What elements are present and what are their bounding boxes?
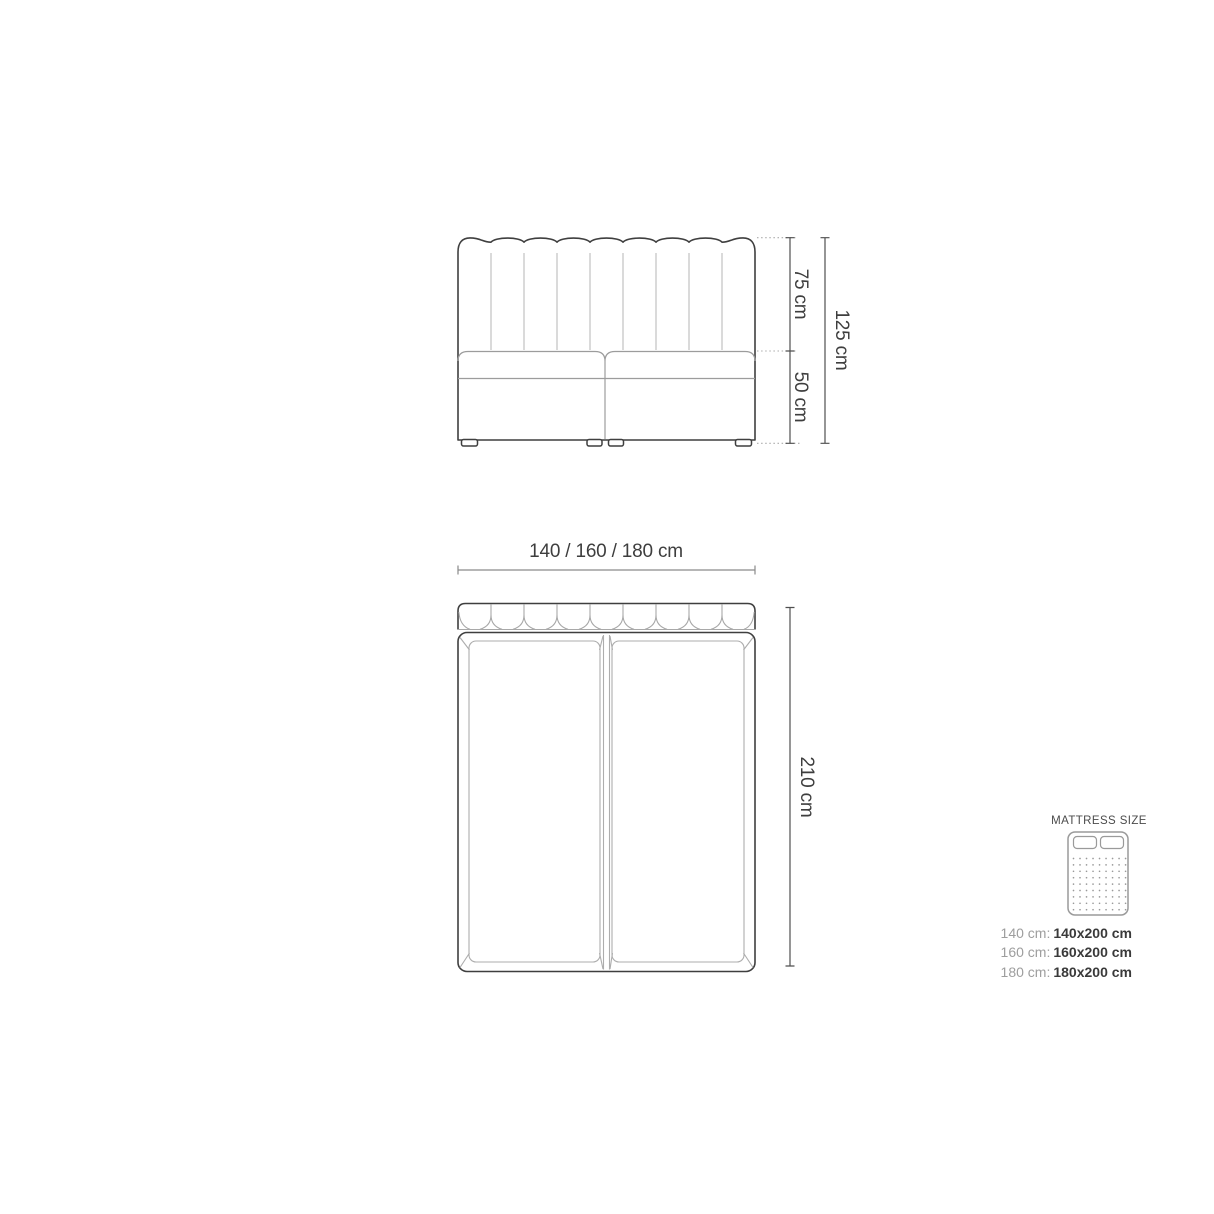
mattress-size-row-label: 140 cm: [1001, 925, 1051, 941]
mattress-size-row-180: 180 cm:180x200 cm [1001, 963, 1132, 982]
mattress-size-row-value: 160x200 cm [1053, 944, 1132, 960]
base-height-label: 50 cm [789, 372, 811, 423]
front-view-drawing [458, 238, 830, 446]
width-label: 140 / 160 / 180 cm [529, 541, 683, 563]
mattress-size-list: 140 cm:140x200 cm 160 cm:160x200 cm 180 … [1001, 924, 1132, 982]
top-frame-outline [458, 633, 755, 972]
mattress-size-title: MATTRESS SIZE [1051, 815, 1147, 827]
width-dimension-line [458, 566, 755, 575]
top-headboard-outline [458, 604, 755, 630]
total-height-label: 125 cm [830, 309, 852, 370]
mattress-size-row-140: 140 cm:140x200 cm [1001, 924, 1132, 943]
diagram-line-art [0, 0, 1214, 1214]
bed-dimension-diagram: 75 cm 50 cm 125 cm 140 / 160 / 180 cm 21… [0, 0, 1214, 1214]
mattress-size-row-value: 180x200 cm [1053, 964, 1132, 980]
length-label: 210 cm [795, 756, 817, 817]
headboard-height-label: 75 cm [789, 269, 811, 320]
mattress-size-row-160: 160 cm:160x200 cm [1001, 943, 1132, 962]
top-view-drawing [458, 566, 795, 972]
mattress-size-icon [1068, 832, 1128, 915]
dimension-line-125 [821, 238, 830, 444]
headboard-outline [458, 238, 755, 440]
mattress-size-row-value: 140x200 cm [1053, 925, 1132, 941]
mattress-size-row-label: 180 cm: [1001, 964, 1051, 980]
mattress-size-row-label: 160 cm: [1001, 944, 1051, 960]
length-dimension-line [786, 608, 795, 967]
